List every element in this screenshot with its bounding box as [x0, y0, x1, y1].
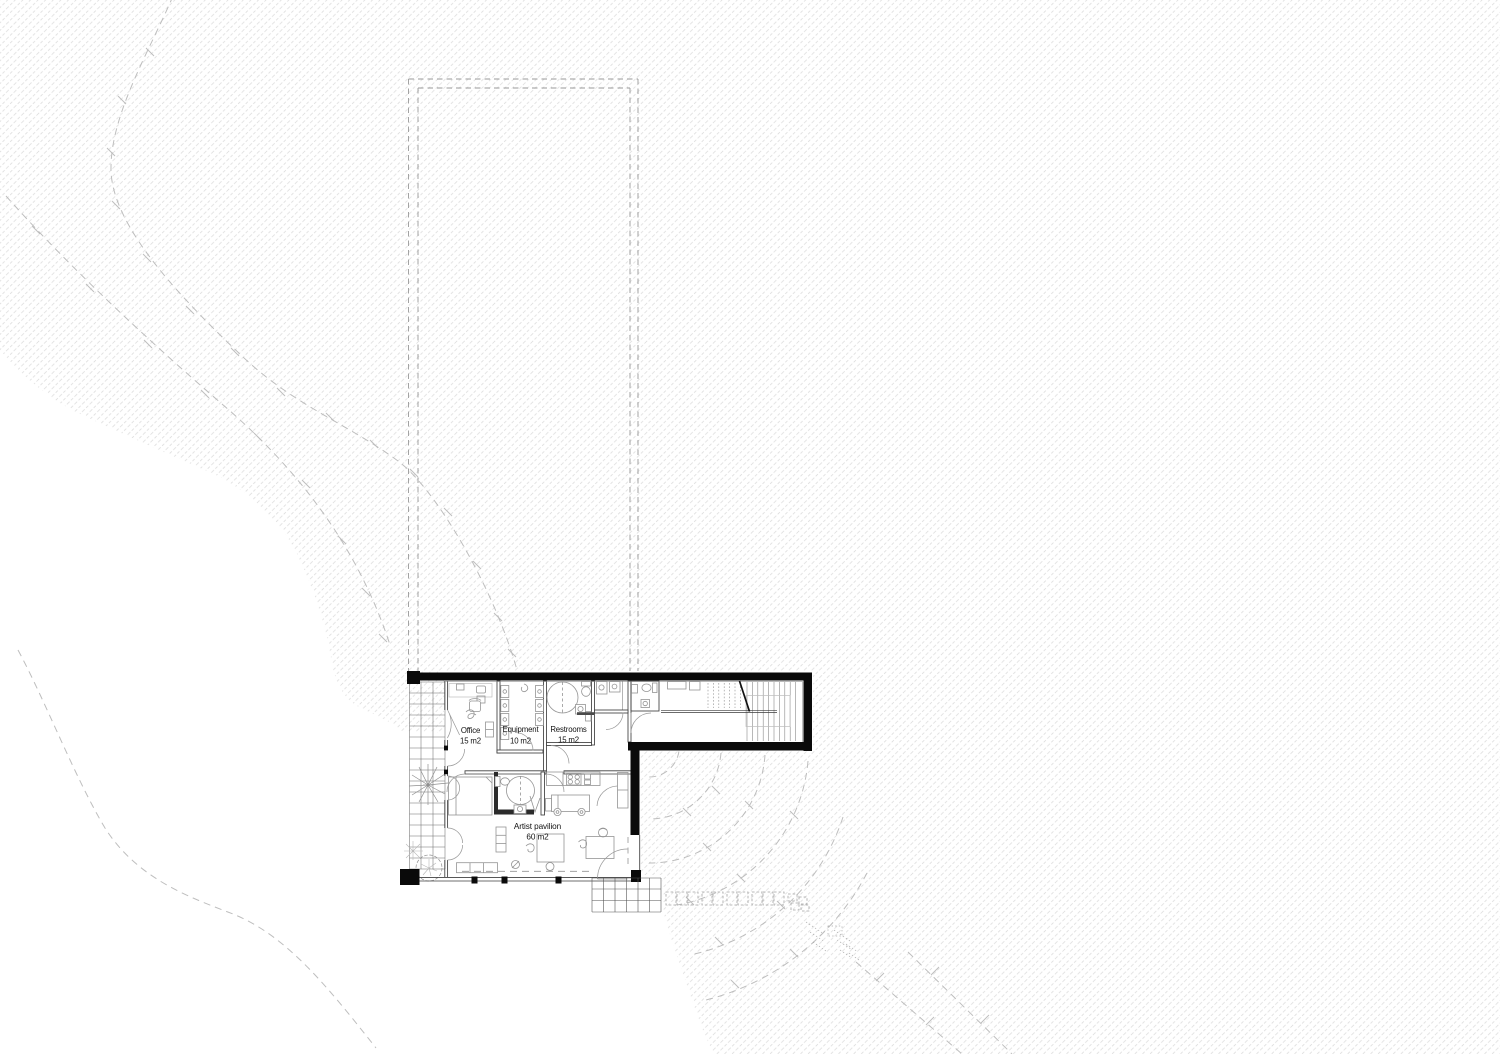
room-label-restrooms-name: Restrooms — [550, 725, 587, 734]
room-label-equipment-area: 10 m2 — [510, 737, 531, 746]
room-label-office-name: Office — [461, 726, 480, 735]
column-south-west — [400, 869, 420, 885]
room-label-pavilion-name: Artist pavilion — [514, 822, 562, 831]
floor-plan-drawing: Office 15 m2 Equipment 10 m2 Restrooms 1… — [0, 0, 1500, 1054]
room-label-restrooms-area: 15 m2 — [558, 736, 579, 745]
room-label-office-area: 15 m2 — [460, 737, 481, 746]
site-plan-canvas: Office 15 m2 Equipment 10 m2 Restrooms 1… — [0, 0, 1500, 1054]
room-label-pavilion-area: 60 m2 — [526, 833, 549, 842]
room-label-equipment-name: Equipment — [503, 725, 540, 734]
column-south-east — [631, 870, 641, 882]
column-north-west — [407, 671, 420, 684]
